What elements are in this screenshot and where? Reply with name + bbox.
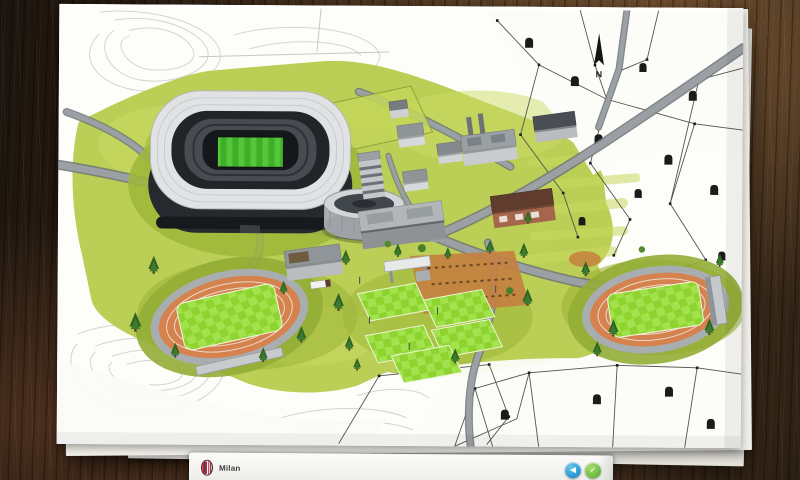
facility-map-sheet: N: [57, 4, 744, 448]
game-screen: N Milan ◀ ✓: [0, 0, 800, 480]
paper-right-shade: [725, 8, 744, 448]
bar-buttons: ◀ ✓: [565, 462, 601, 478]
bottom-bar: Milan ◀ ✓: [189, 453, 613, 480]
stadium-pitch: [217, 137, 283, 167]
svg-text:N: N: [596, 69, 603, 79]
team-name: Milan: [219, 463, 241, 472]
back-button[interactable]: ◀: [565, 462, 581, 478]
club-crest-icon: [201, 460, 213, 476]
bar-fold-shade: [597, 455, 613, 480]
facility-map: N: [57, 4, 744, 448]
